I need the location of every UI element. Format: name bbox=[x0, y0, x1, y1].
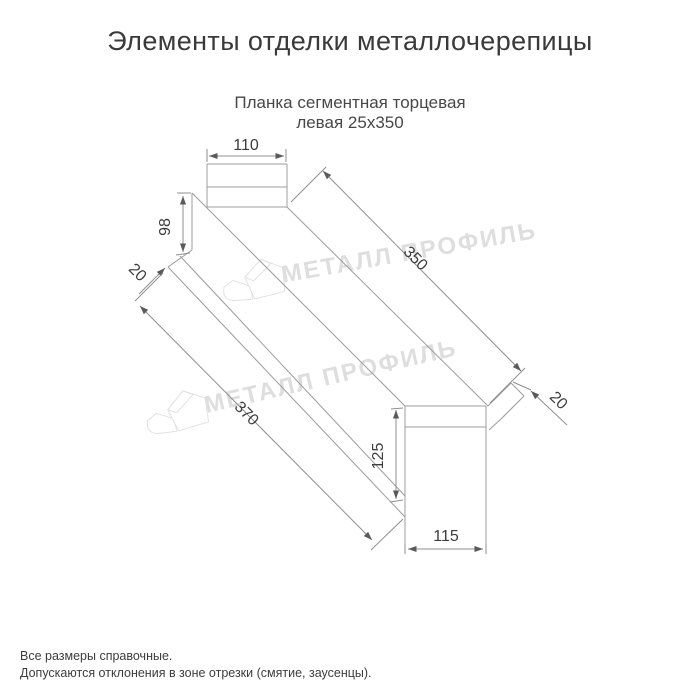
dim-label-125: 125 bbox=[370, 443, 387, 470]
page: Элементы отделки металлочерепицы Планка … bbox=[0, 0, 700, 700]
metall-profil-logo-icon bbox=[142, 386, 211, 437]
dimension-20-right: 20 bbox=[513, 382, 571, 425]
dim-label-98: 98 bbox=[157, 218, 174, 236]
dimension-115: 115 bbox=[405, 528, 486, 554]
right-end-view bbox=[405, 406, 486, 547]
top-flange-end-view bbox=[207, 164, 287, 207]
watermark-upper: МЕТАЛЛ ПРОФИЛЬ bbox=[219, 211, 540, 304]
watermark-lower: МЕТАЛЛ ПРОФИЛЬ bbox=[142, 329, 461, 438]
footer-note-2: Допускаются отклонения в зоне отрезки (с… bbox=[20, 665, 372, 682]
footer-note-1: Все размеры справочные. bbox=[20, 648, 372, 665]
dimension-110: 110 bbox=[207, 137, 286, 162]
footer-notes: Все размеры справочные. Допускаются откл… bbox=[20, 648, 372, 682]
dim-label-20-left: 20 bbox=[125, 261, 150, 286]
right-hem-edges bbox=[488, 383, 524, 430]
dim-label-20-right: 20 bbox=[546, 389, 571, 414]
metall-profil-logo-icon bbox=[219, 256, 287, 304]
dim-label-110: 110 bbox=[233, 137, 259, 154]
dimension-98: 98 bbox=[157, 193, 191, 255]
dim-label-115: 115 bbox=[433, 528, 459, 545]
technical-drawing: МЕТАЛЛ ПРОФИЛЬ МЕТАЛЛ ПРОФИЛЬ bbox=[0, 0, 700, 700]
